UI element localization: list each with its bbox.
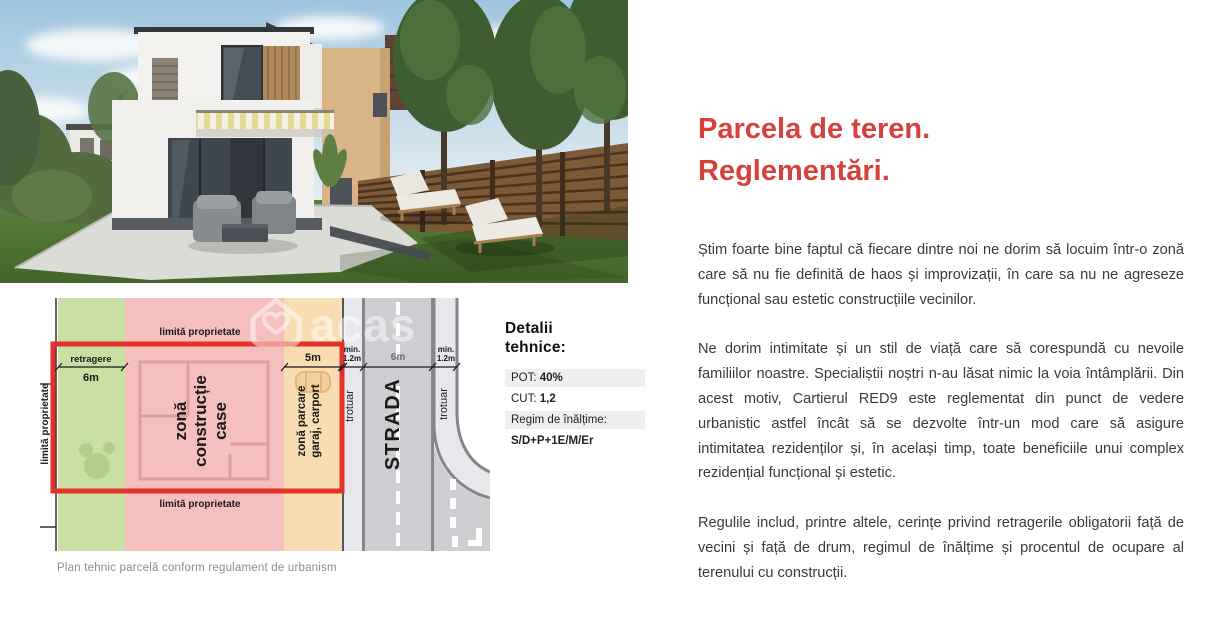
limita-proprietate-bottom-label: limită proprietate [159,499,241,510]
page-title-line2: Reglementări. [698,150,1184,192]
paragraph-3: Regulile includ, printre altele, cerințe… [698,511,1184,585]
paragraph-1: Știm foarte bine faptul că fiecare dintr… [698,238,1184,312]
article-body: Știm foarte bine faptul că fiecare dintr… [698,238,1184,586]
trotuar-right-label: trotuar [438,388,450,420]
svg-text:1.2m: 1.2m [343,354,361,363]
svg-text:construcție: construcție [191,375,210,467]
street-dimension: 6m [391,352,406,363]
pot-value: 40% [540,372,563,384]
trotuar-left-label: trotuar [344,390,356,422]
svg-text:garaj, carport: garaj, carport [310,384,322,458]
page-title: Parcela de teren. Reglementări. [698,108,1184,192]
zone-retragere-green [58,298,125,551]
site-plan-diagram: limită proprietate limită proprietate li… [40,294,490,556]
parcare-dimension: 5m [305,352,321,364]
svg-text:zonă: zonă [171,401,190,440]
regim-label-row: Regim de înălțime: [505,411,645,429]
pot-row: POT: 40% [505,369,645,387]
watermark-text: acas [310,299,416,351]
tech-details-title: Detalii tehnice: [505,320,645,358]
tech-details-panel: Detalii tehnice: POT: 40% CUT: 1,2 Regim… [505,320,645,453]
page-title-line1: Parcela de teren. [698,108,1184,150]
svg-text:zonă parcare: zonă parcare [296,386,308,457]
plan-caption: Plan tehnic parcelă conform regulament d… [57,562,337,574]
retragere-label: retragere [70,354,111,365]
house-render-photo [0,0,628,283]
tech-details-title-line2: tehnice: [505,339,645,358]
cut-value: 1,2 [540,393,556,405]
limita-proprietate-top-label: limită proprietate [159,327,241,338]
regim-value-row: S/D+P+1E/M/Er [505,432,645,450]
strada-label: STRADA [382,378,404,470]
page: limită proprietate limită proprietate li… [0,0,1230,625]
tech-details-rows: POT: 40% CUT: 1,2 Regim de înălțime: S/D… [505,369,645,450]
paragraph-2: Ne dorim intimitate și un stil de viață … [698,337,1184,486]
retragere-dimension: 6m [83,372,99,384]
sidewalk-min-right-label: min. [438,345,454,354]
article: Parcela de teren. Reglementări. Știm foa… [698,108,1184,611]
regim-value: S/D+P+1E/M/Er [511,435,593,447]
limita-proprietate-left-label: limită proprietate [40,383,51,465]
cut-row: CUT: 1,2 [505,390,645,408]
svg-text:1.2m: 1.2m [437,354,455,363]
tech-details-title-line1: Detalii [505,320,645,339]
svg-text:case: case [211,402,230,440]
